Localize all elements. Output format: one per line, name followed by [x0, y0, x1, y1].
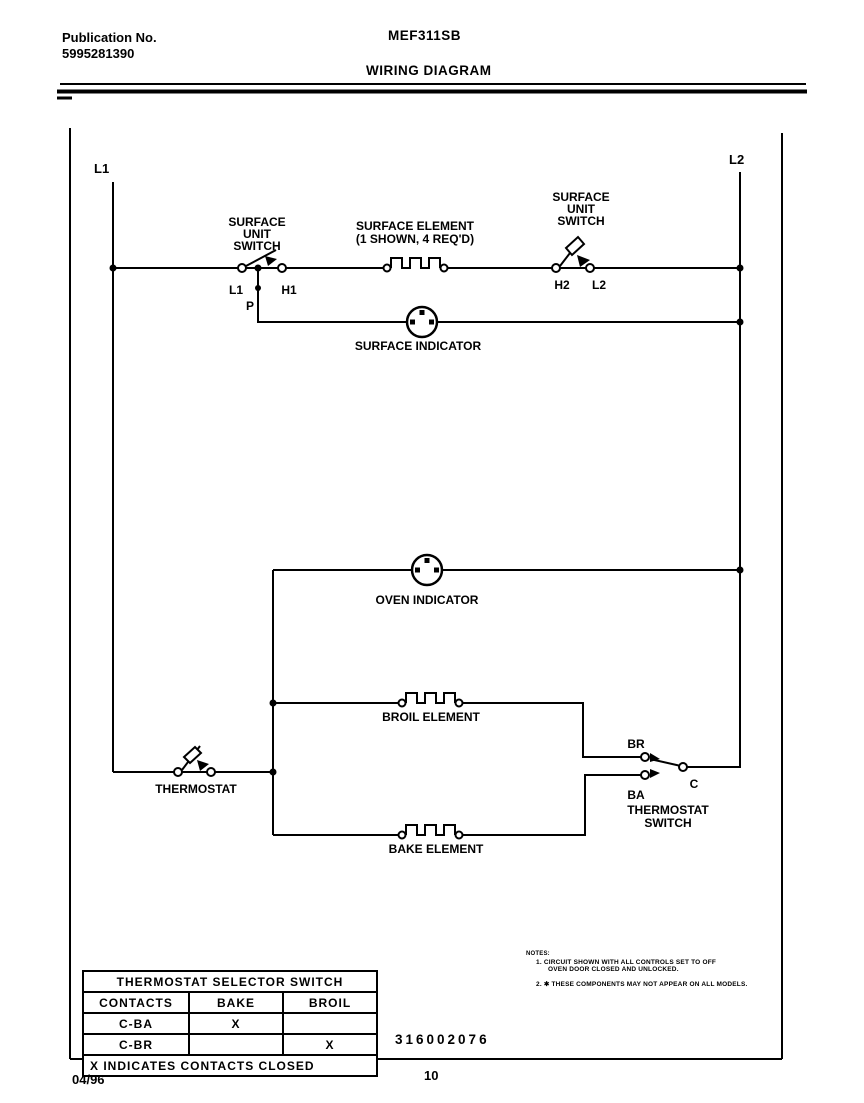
terminal-l2-circle: [586, 264, 594, 272]
l1-rail: L1: [94, 161, 113, 772]
thermostat-switch: BR C BA THERMOSTAT SWITCH: [627, 737, 709, 830]
surface-element: SURFACE ELEMENT (1 SHOWN, 4 REQ'D): [286, 219, 552, 272]
resistor-symbol: [391, 258, 440, 268]
cell-broil: X: [283, 1034, 377, 1055]
surface-element-label-line1: SURFACE ELEMENT: [356, 219, 475, 233]
terminal-l1-circle: [238, 264, 246, 272]
header-rules: [57, 84, 807, 98]
footer-page-number: 10: [424, 1068, 438, 1083]
switch-thermal-flag: [566, 237, 584, 255]
lamp-contact: [420, 310, 425, 315]
l2-rail: L2: [687, 152, 744, 767]
terminal-h1-label: H1: [281, 283, 297, 297]
column-header-broil: BROIL: [283, 992, 377, 1013]
footer-date: 04/96: [72, 1072, 105, 1087]
resistor-symbol: [406, 825, 455, 835]
table-footnote-row: X INDICATES CONTACTS CLOSED: [83, 1055, 377, 1076]
switch-arrow: [265, 256, 277, 266]
surface-indicator-label: SURFACE INDICATOR: [355, 339, 482, 353]
bake-element: BAKE ELEMENT: [273, 775, 641, 856]
bake-element-label: BAKE ELEMENT: [389, 842, 484, 856]
terminal-l2-label: L2: [592, 278, 606, 292]
table-title: THERMOSTAT SELECTOR SWITCH: [83, 971, 377, 992]
cell-broil: [283, 1013, 377, 1034]
terminal-h2-circle: [552, 264, 560, 272]
terminal-circle: [207, 768, 215, 776]
table-row: C-BR X: [83, 1034, 377, 1055]
terminal-l1-label: L1: [229, 283, 243, 297]
table-header-row: CONTACTS BAKE BROIL: [83, 992, 377, 1013]
oven-indicator-label: OVEN INDICATOR: [376, 593, 479, 607]
note-2: 2. ✱ THESE COMPONENTS MAY NOT APPEAR ON …: [536, 980, 806, 988]
thermostat: THERMOSTAT: [113, 746, 277, 796]
note-1-line-2: OVEN DOOR CLOSED AND UNLOCKED.: [548, 966, 806, 973]
lamp-contact: [434, 568, 439, 573]
surface-element-label-line2: (1 SHOWN, 4 REQ'D): [356, 232, 474, 246]
terminal-ba-label: BA: [627, 788, 645, 802]
lamp-contact: [425, 558, 430, 563]
switch-arrow: [650, 769, 660, 778]
oven-indicator: OVEN INDICATOR: [273, 555, 740, 607]
cell-bake: [189, 1034, 283, 1055]
wire: [463, 775, 641, 835]
thermostat-selector-table: THERMOSTAT SELECTOR SWITCH CONTACTS BAKE…: [82, 970, 378, 1077]
broil-element: BROIL ELEMENT: [270, 693, 642, 757]
lamp-contact: [429, 320, 434, 325]
switch-blade: [650, 759, 681, 766]
part-number: 316002076: [395, 1032, 490, 1047]
terminal-c-circle: [679, 763, 687, 771]
switch-label-line3: SWITCH: [557, 214, 604, 228]
thermostat-switch-label-line1: THERMOSTAT: [627, 803, 709, 817]
notes-heading: NOTES:: [526, 951, 806, 957]
resistor-symbol: [406, 693, 455, 703]
table-title-row: THERMOSTAT SELECTOR SWITCH: [83, 971, 377, 992]
column-header-contacts: CONTACTS: [83, 992, 189, 1013]
wire: [463, 703, 641, 757]
element-terminal-circle: [441, 265, 448, 272]
lamp-contact: [410, 320, 415, 325]
table-row: C-BA X: [83, 1013, 377, 1034]
element-terminal-circle: [399, 700, 406, 707]
terminal-h2-label: H2: [554, 278, 570, 292]
lamp-contact: [415, 568, 420, 573]
element-terminal-circle: [456, 832, 463, 839]
terminal-p-label: P: [246, 299, 254, 313]
surface-unit-switch-left: SURFACE UNIT SWITCH L1 H1 P: [110, 215, 297, 313]
junction-dot: [270, 769, 277, 776]
terminal-ba-circle: [641, 771, 649, 779]
l2-rail-label: L2: [729, 152, 744, 167]
column-header-bake: BAKE: [189, 992, 283, 1013]
l1-rail-label: L1: [94, 161, 109, 176]
wiring-diagram-canvas: L1 L2 SURFACE UNIT SWITCH L1 H1 P SURFAC…: [0, 0, 864, 1103]
cell-contact: C-BA: [83, 1013, 189, 1034]
note-1-line-1: 1. CIRCUIT SHOWN WITH ALL CONTROLS SET T…: [536, 959, 806, 966]
terminal-h1-circle: [278, 264, 286, 272]
thermostat-label: THERMOSTAT: [155, 782, 237, 796]
surface-unit-switch-right: SURFACE UNIT SWITCH H2 L2: [552, 190, 740, 292]
broil-element-label: BROIL ELEMENT: [382, 710, 480, 724]
cell-contact: C-BR: [83, 1034, 189, 1055]
thermostat-switch-label-line2: SWITCH: [644, 816, 691, 830]
l2-rail-wire: [687, 172, 740, 767]
notes-block: NOTES: 1. CIRCUIT SHOWN WITH ALL CONTROL…: [526, 951, 806, 988]
terminal-br-label: BR: [627, 737, 645, 751]
element-terminal-circle: [456, 700, 463, 707]
element-terminal-circle: [399, 832, 406, 839]
terminal-br-circle: [641, 753, 649, 761]
thermostat-selector-table-wrap: THERMOSTAT SELECTOR SWITCH CONTACTS BAKE…: [82, 970, 378, 1077]
surface-indicator: SURFACE INDICATOR: [258, 270, 740, 353]
terminal-circle: [174, 768, 182, 776]
table-footnote: X INDICATES CONTACTS CLOSED: [83, 1055, 377, 1076]
terminal-c-label: C: [690, 777, 699, 791]
cell-bake: X: [189, 1013, 283, 1034]
element-terminal-circle: [384, 265, 391, 272]
